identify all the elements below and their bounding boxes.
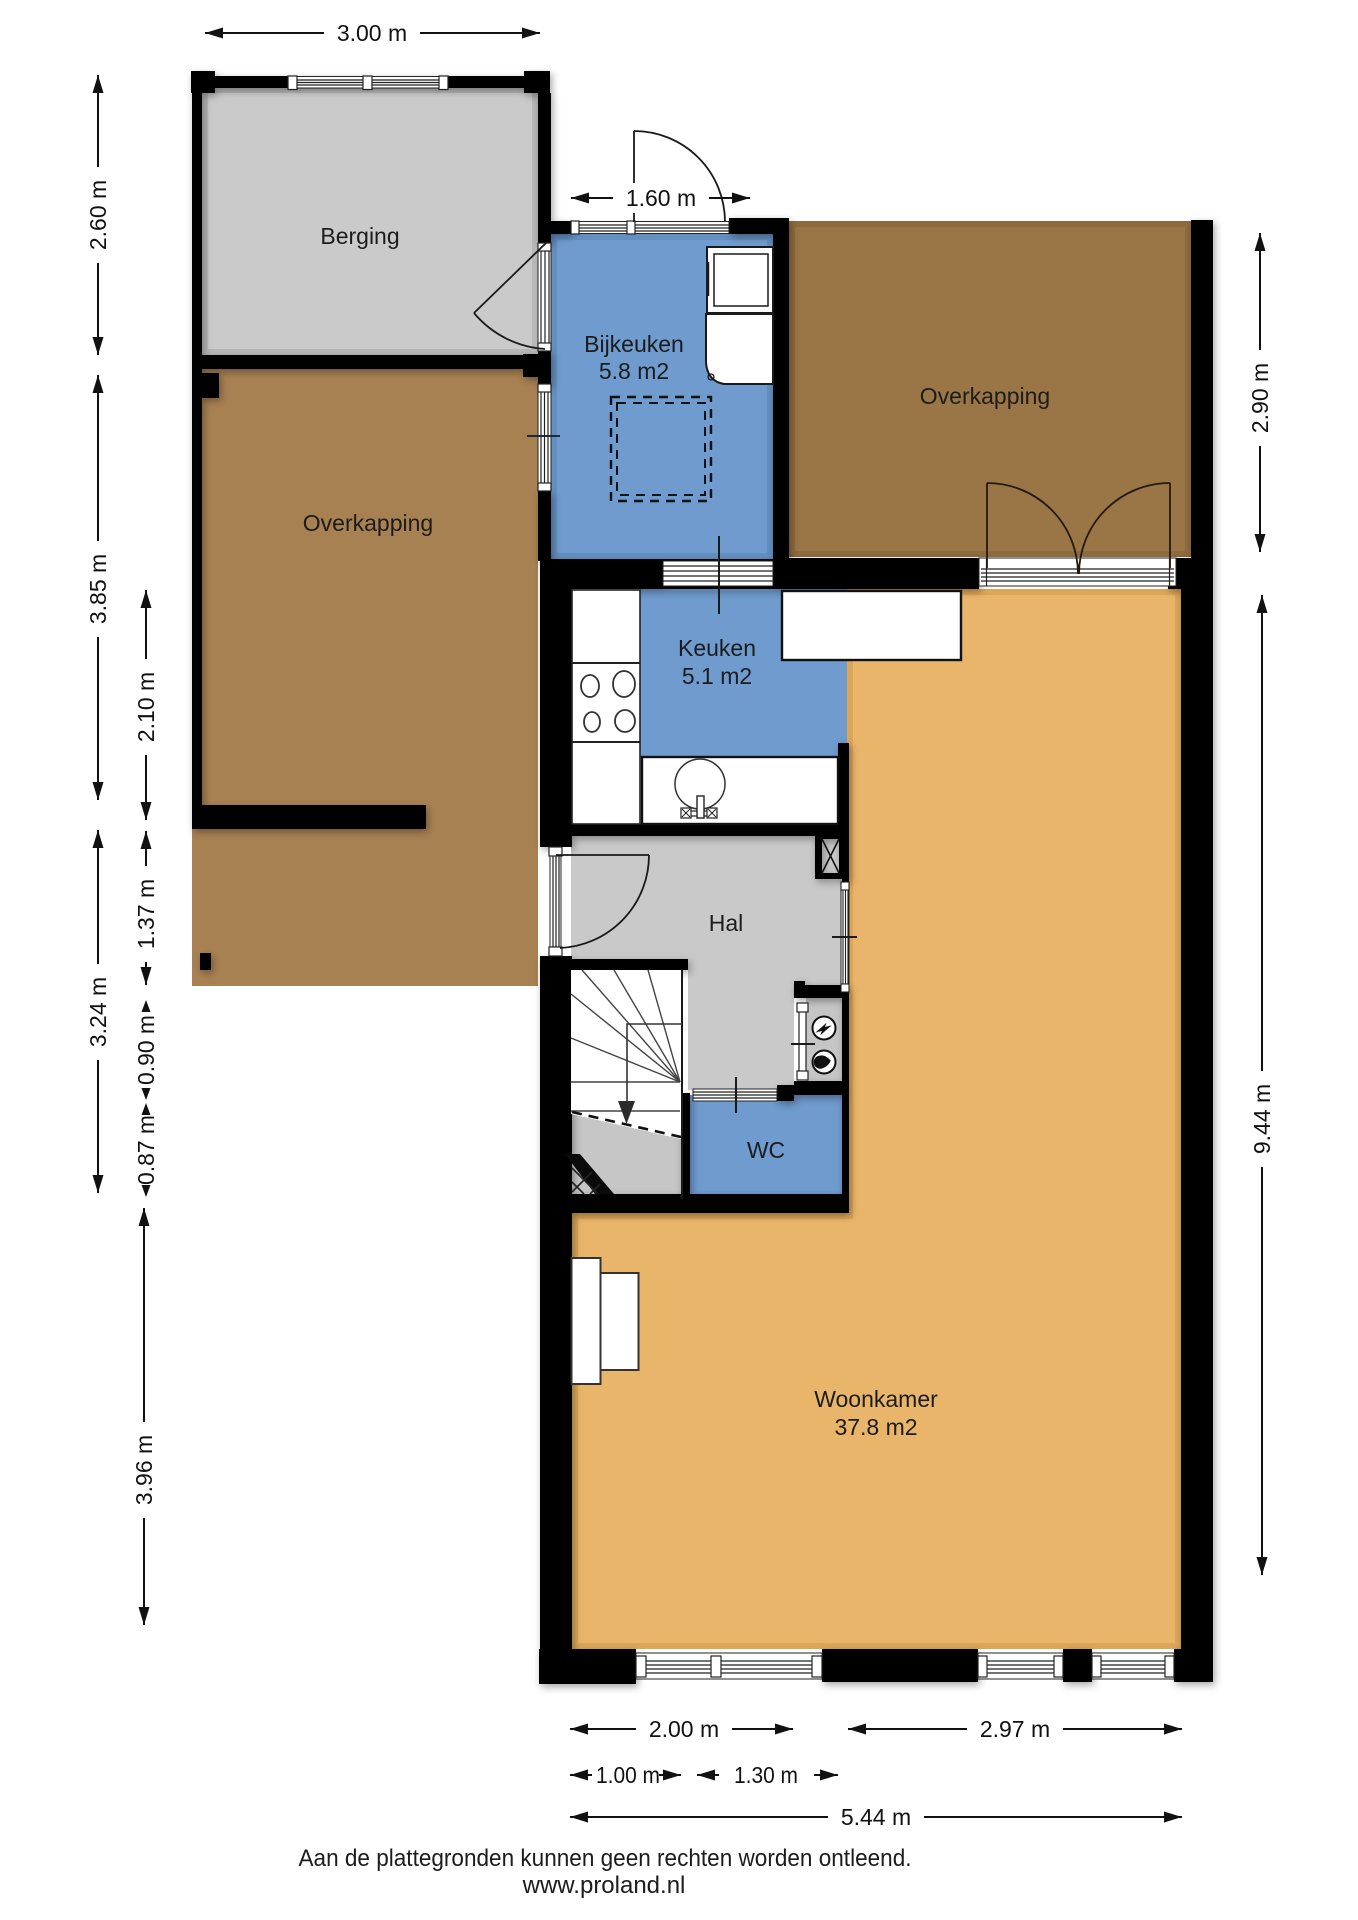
svg-text:2.00 m: 2.00 m [649, 1716, 719, 1742]
svg-text:1.00 m: 1.00 m [596, 1762, 660, 1788]
svg-text:5.44 m: 5.44 m [841, 1804, 911, 1830]
svg-text:0.87 m: 0.87 m [133, 1115, 159, 1185]
svg-text:Keuken: Keuken [678, 635, 756, 661]
svg-text:37.8 m2: 37.8 m2 [834, 1414, 917, 1440]
svg-text:1.60 m: 1.60 m [626, 185, 696, 211]
svg-text:2.90 m: 2.90 m [1247, 363, 1273, 433]
svg-text:2.97 m: 2.97 m [980, 1716, 1050, 1742]
svg-text:3.24 m: 3.24 m [85, 977, 111, 1047]
svg-text:WC: WC [747, 1137, 785, 1163]
svg-text:1.30 m: 1.30 m [734, 1762, 798, 1788]
svg-text:Overkapping: Overkapping [303, 510, 433, 536]
svg-text:1.37 m: 1.37 m [133, 879, 159, 949]
svg-text:Woonkamer: Woonkamer [814, 1386, 938, 1412]
svg-text:0.90 m: 0.90 m [133, 1015, 159, 1085]
svg-text:3.00 m: 3.00 m [337, 20, 407, 46]
svg-text:Berging: Berging [320, 223, 399, 249]
svg-text:2.60 m: 2.60 m [85, 180, 111, 250]
svg-text:www.proland.nl: www.proland.nl [522, 1872, 686, 1899]
svg-text:Hal: Hal [709, 910, 744, 936]
svg-text:2.10 m: 2.10 m [133, 672, 159, 742]
svg-text:Aan de plattegronden kunnen ge: Aan de plattegronden kunnen geen rechten… [299, 1845, 912, 1872]
svg-text:5.1 m2: 5.1 m2 [682, 663, 752, 689]
svg-text:5.8 m2: 5.8 m2 [599, 358, 669, 384]
svg-text:Overkapping: Overkapping [920, 383, 1050, 409]
svg-text:9.44 m: 9.44 m [1249, 1084, 1275, 1154]
svg-text:3.85 m: 3.85 m [85, 554, 111, 624]
svg-text:3.96 m: 3.96 m [131, 1435, 157, 1505]
svg-text:Bijkeuken: Bijkeuken [584, 331, 684, 357]
